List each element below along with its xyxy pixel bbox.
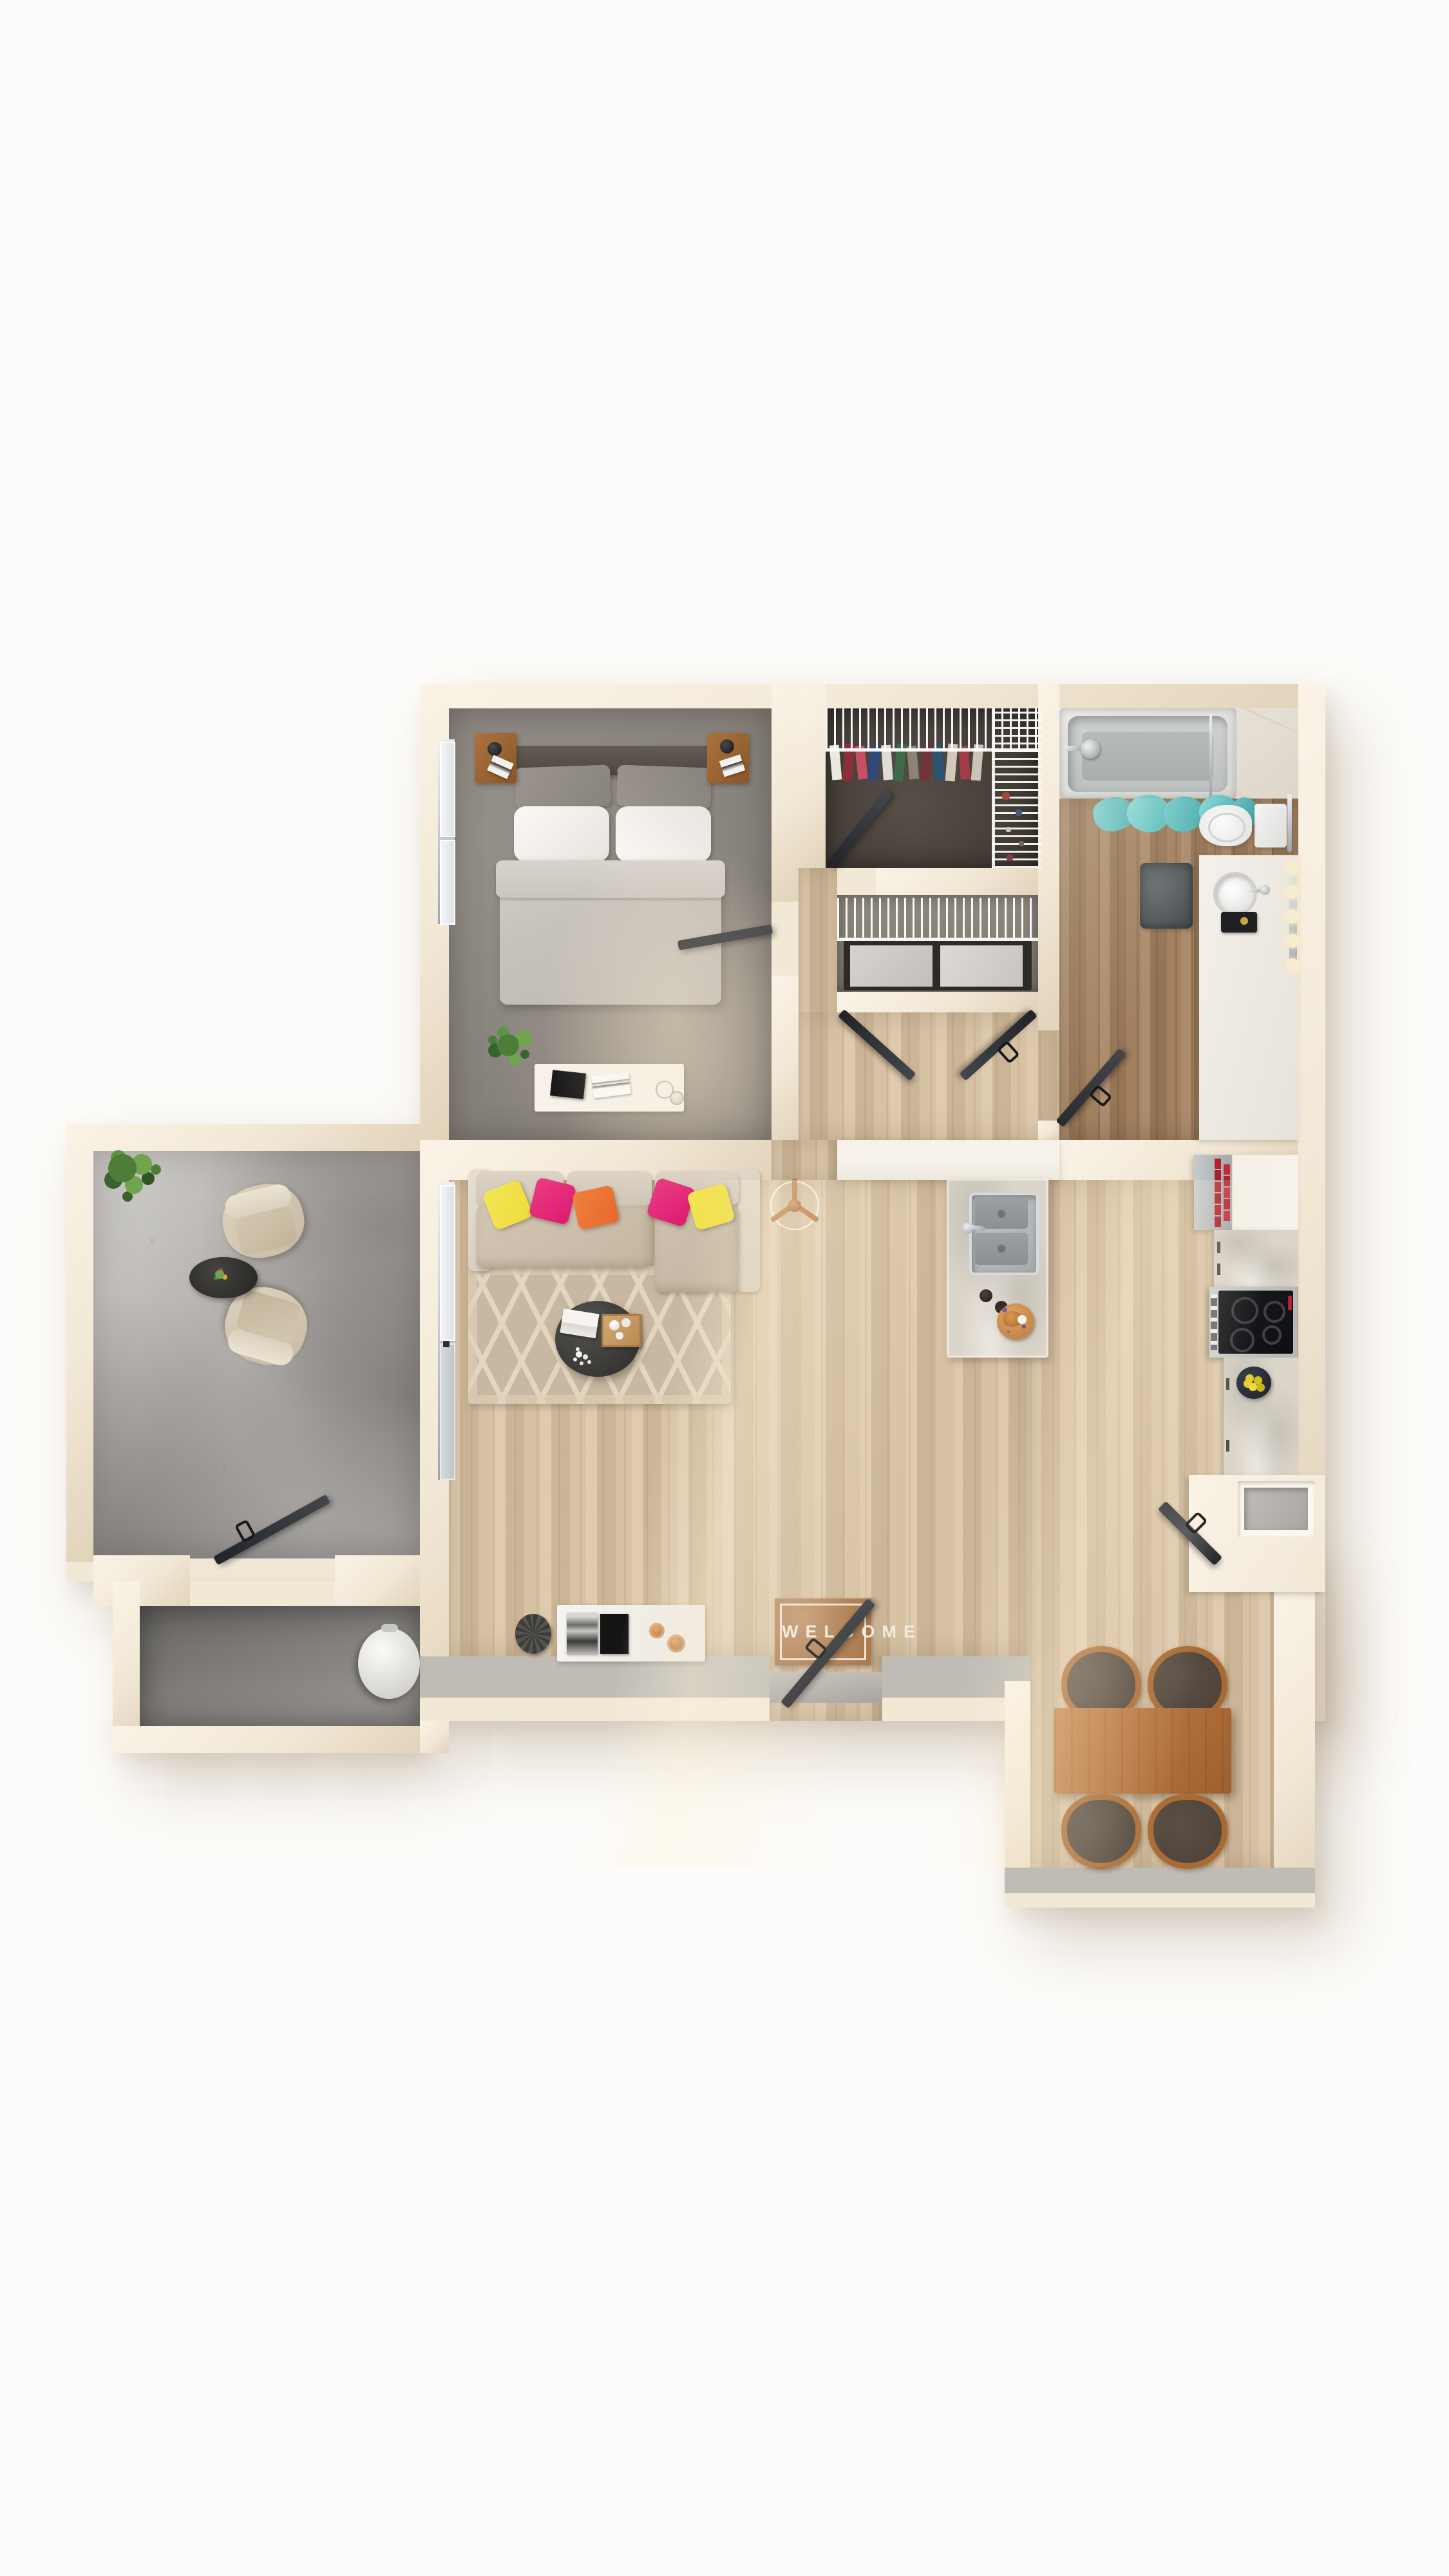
vanity-light-bulb: [1285, 934, 1300, 948]
burner: [1264, 1301, 1285, 1323]
patio-side-table: [189, 1257, 258, 1298]
toilet-bowl-inner: [1208, 813, 1245, 842]
dryer: [940, 945, 1023, 987]
towel-bar: [1287, 794, 1292, 852]
sink-drain-top: [997, 1209, 1006, 1218]
console-black-frame: [600, 1614, 629, 1654]
wall-top: [420, 684, 1325, 708]
burner: [1230, 1328, 1255, 1352]
vanity-light-bulb: [1285, 958, 1300, 972]
wall-storage-bottom: [113, 1726, 420, 1753]
wall-right-upper: [1298, 684, 1325, 1592]
range-brand-label: [1288, 1296, 1292, 1310]
closet-wire-shelf-side: [992, 708, 1041, 868]
fridge-bottle-rack: [1215, 1159, 1221, 1169]
lamp-hub: [788, 1199, 801, 1212]
dining-table: [1054, 1708, 1231, 1794]
storage-vase-neck: [381, 1624, 398, 1632]
patio-table-plant: [215, 1270, 224, 1279]
toilet-tank: [1255, 804, 1287, 848]
burner: [1262, 1325, 1282, 1345]
living-window: [440, 1185, 455, 1341]
coffee-table-tray: [601, 1314, 641, 1347]
wall-closet-left: [799, 684, 826, 868]
vanity-sink: [1213, 872, 1257, 916]
bed-throw-pillow-right: [616, 764, 712, 809]
vanity-light-bulb: [1285, 860, 1300, 875]
console-candle-copper-2: [667, 1634, 685, 1653]
laundry-wire-shelf: [837, 898, 1038, 941]
wall-dining-bottom: [1005, 1868, 1315, 1908]
kitchen-peninsula-counter: [837, 1140, 1059, 1180]
wall-patio-storage-left-seg: [93, 1555, 190, 1606]
patio-sliding-door: [440, 1343, 455, 1480]
espresso-cups: [980, 1289, 992, 1302]
console-candle-copper-1: [649, 1623, 665, 1638]
dining-chair: [1061, 1794, 1141, 1869]
wall-bedroom-divider-upper: [772, 684, 799, 902]
pastry-dollop: [1018, 1315, 1027, 1324]
sofa: [468, 1167, 760, 1293]
lemons: [1245, 1374, 1254, 1383]
hallway-opening-floor: [772, 1140, 837, 1180]
burner: [1231, 1297, 1258, 1324]
sofa-arm-right: [737, 1170, 760, 1292]
dresser-magazine: [591, 1072, 631, 1099]
coffee-table-flowers: [576, 1351, 582, 1358]
bedroom-plant: [497, 1034, 519, 1056]
dresser-dish-small: [670, 1091, 684, 1105]
vanity-light-bulb: [1285, 909, 1300, 923]
tray-decor-balls: [609, 1320, 620, 1331]
bed-pillow-left: [514, 806, 609, 862]
niche-inner: [1244, 1488, 1308, 1530]
wall-patio-top: [66, 1124, 420, 1151]
storage-vase: [358, 1628, 420, 1699]
wall-living-bottom-left: [420, 1656, 770, 1721]
patio-plant: [108, 1154, 137, 1182]
pastry-garnish: [1002, 1307, 1007, 1312]
vanity-light-bulb: [1285, 885, 1300, 899]
wall-laundry-bottom: [837, 992, 1038, 1012]
bed-duvet-fold: [496, 860, 725, 898]
shower-rod: [1209, 714, 1212, 799]
wall-patio-storage-right-seg: [335, 1555, 420, 1606]
washer: [850, 945, 933, 987]
bathtub-basin-floor: [1082, 732, 1213, 781]
wall-right-lower: [1274, 1592, 1315, 1908]
range-cooktop: [1218, 1291, 1293, 1354]
sink-drain-bottom: [997, 1244, 1006, 1253]
wall-bedroom-divider-lower: [772, 976, 799, 1140]
bed-pillow-right: [616, 806, 711, 862]
refrigerator: [1194, 1155, 1298, 1230]
dining-chair: [1148, 1794, 1227, 1869]
vanity-soap: [1240, 917, 1248, 925]
floor-plan-scene: WELCOME: [0, 0, 1449, 2576]
console-photo-frame: [567, 1613, 598, 1654]
vanity-faucet-base: [1260, 885, 1270, 895]
decorative-plate: [515, 1614, 551, 1654]
shower-head-face: [1081, 739, 1100, 759]
closet-shoes: [1002, 792, 1010, 800]
tripod-floor-lamp: [770, 1181, 819, 1230]
bedroom-window-upper: [440, 742, 455, 837]
cabinet-handles-upper: [1217, 1242, 1220, 1253]
nightstand-lamp-right: [720, 739, 734, 753]
range-controls: [1211, 1294, 1217, 1350]
wall-closet-bottom: [876, 868, 1038, 895]
sliding-door-handle: [443, 1341, 450, 1347]
nightstand-lamp-left: [488, 742, 502, 756]
lemon-bowl: [1236, 1367, 1271, 1399]
dresser-books: [550, 1070, 586, 1099]
bedroom-window-lower: [440, 840, 455, 925]
bath-mat: [1140, 863, 1193, 929]
kitchen-counter-upper: [1214, 1230, 1298, 1287]
vanity-tray: [1221, 912, 1257, 933]
cabinet-handles-lower: [1226, 1378, 1229, 1390]
wall-bath-divider-stub: [1038, 1121, 1059, 1140]
wall-patio-left: [66, 1124, 93, 1562]
wall-storage-right-patch: [420, 1721, 449, 1753]
bed-throw-pillow-left: [515, 764, 611, 809]
